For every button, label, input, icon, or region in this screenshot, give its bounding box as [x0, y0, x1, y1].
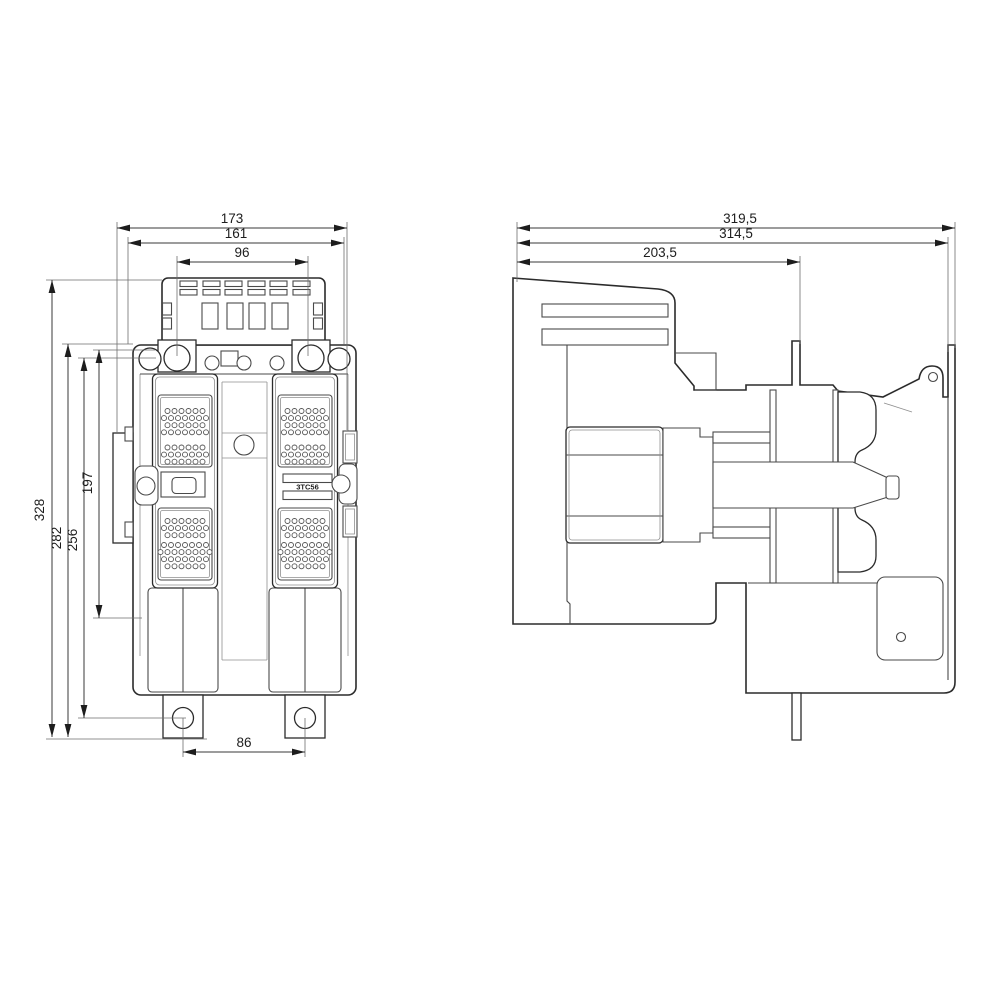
center-screw-icon	[234, 435, 254, 455]
dim-label-mounting-height: 256	[65, 529, 80, 552]
dim-label-body-height: 282	[49, 527, 64, 550]
plunger-tip	[886, 476, 899, 499]
plunger-shaft	[713, 462, 888, 508]
coil-screw-right	[298, 345, 324, 371]
coupling-block	[663, 428, 713, 542]
dim-label-front-depth: 203,5	[643, 245, 677, 260]
dim-label-plate-depth: 314,5	[719, 226, 753, 241]
dim-label-cover-height: 197	[80, 472, 95, 495]
dimension-drawing: 3TC56	[0, 0, 1000, 1000]
rear-panel-hole	[897, 633, 906, 642]
bottom-tab	[792, 693, 801, 740]
arc-chute-left	[148, 588, 218, 692]
coil-terminal-block	[162, 278, 325, 345]
dim-label-total-height: 328	[32, 499, 47, 522]
rear-ear-hole	[929, 373, 938, 382]
arc-chute-right	[269, 588, 341, 692]
side-view	[513, 278, 955, 740]
dim-label-total-depth: 319,5	[723, 211, 757, 226]
dim-label-coil-terminal-spacing: 96	[234, 245, 249, 260]
left-pole-window	[161, 472, 205, 497]
dim-label-body-width: 161	[225, 226, 248, 241]
front-view: 3TC56	[113, 278, 357, 738]
product-model-label: 3TC56	[296, 483, 319, 492]
mounting-feet	[163, 695, 325, 738]
side-top-slot-1	[542, 304, 668, 317]
side-cover-block	[566, 427, 663, 543]
rear-panel	[877, 577, 943, 660]
side-top-slot-2	[542, 329, 668, 345]
dim-label-total-width: 173	[221, 211, 244, 226]
technical-drawing-page: 3TC56	[0, 0, 1000, 1000]
dim-label-foot-hole-spacing: 86	[236, 735, 251, 750]
